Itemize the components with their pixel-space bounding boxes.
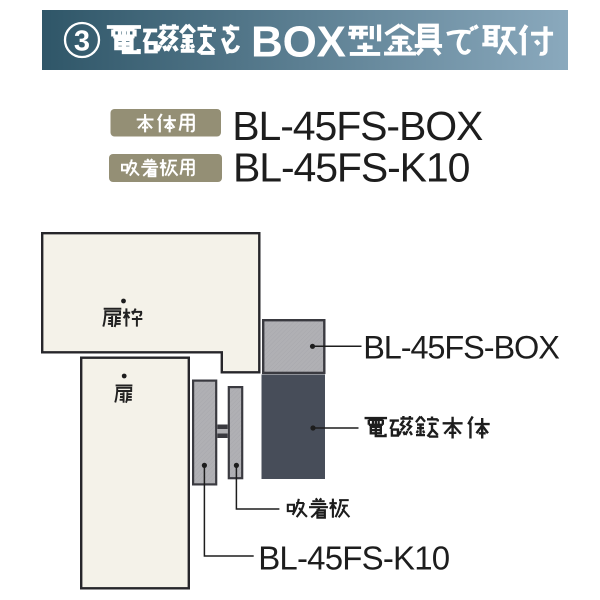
svg-text:BL-45FS-BOX: BL-45FS-BOX bbox=[363, 330, 559, 366]
svg-text:BL-45FS-K10: BL-45FS-K10 bbox=[258, 540, 450, 577]
svg-text:3: 3 bbox=[74, 26, 90, 58]
svg-text:BOX: BOX bbox=[251, 18, 346, 67]
svg-text:BL-45FS-K10: BL-45FS-K10 bbox=[233, 145, 470, 191]
svg-text:BL-45FS-BOX: BL-45FS-BOX bbox=[232, 103, 483, 149]
